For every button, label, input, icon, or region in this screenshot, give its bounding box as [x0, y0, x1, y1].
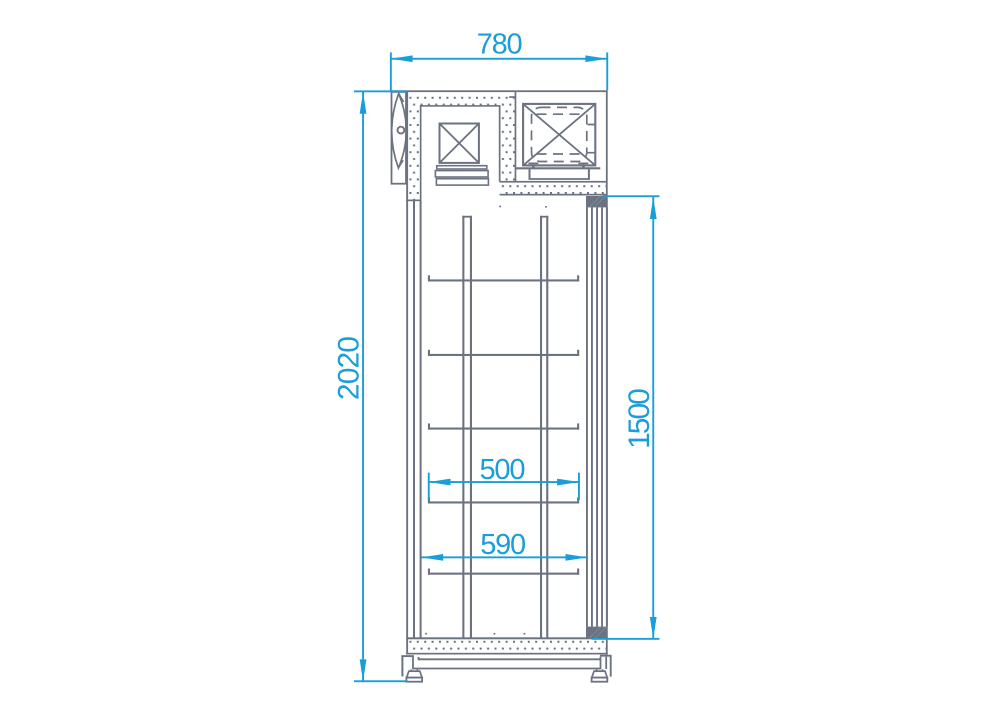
svg-text:780: 780: [477, 28, 522, 60]
svg-text:2020: 2020: [332, 337, 365, 400]
svg-text:500: 500: [480, 454, 525, 486]
svg-text:1500: 1500: [623, 389, 656, 449]
svg-text:590: 590: [480, 529, 525, 561]
